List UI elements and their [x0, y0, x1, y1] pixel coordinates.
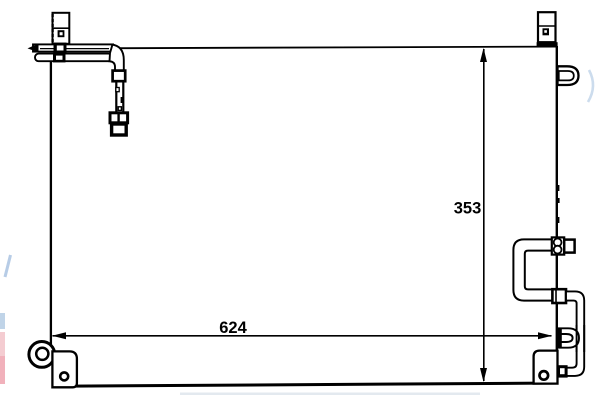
svg-text:624: 624 — [219, 319, 247, 337]
svg-text:353: 353 — [454, 200, 482, 218]
